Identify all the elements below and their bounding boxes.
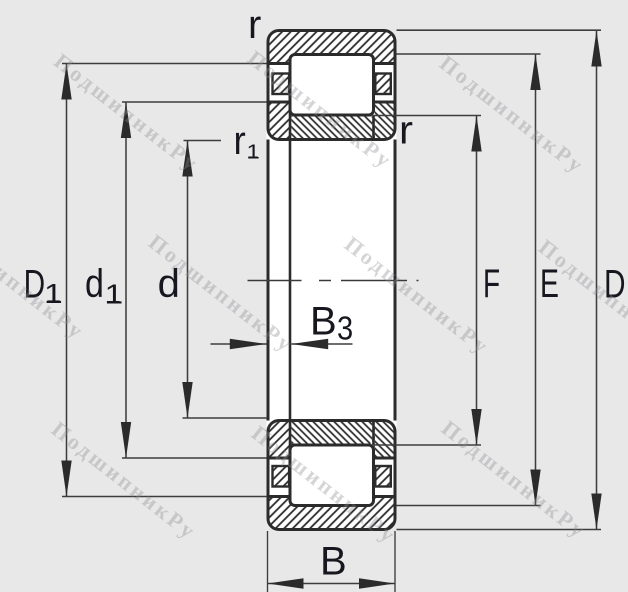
svg-text:r: r [399, 107, 413, 152]
svg-text:3: 3 [337, 310, 353, 347]
svg-text:1: 1 [105, 278, 124, 310]
svg-text:1: 1 [247, 140, 260, 163]
svg-text:F: F [483, 262, 500, 306]
svg-text:B: B [320, 540, 347, 584]
svg-text:d: d [85, 260, 104, 305]
svg-text:r: r [234, 119, 246, 164]
svg-text:B: B [310, 300, 337, 344]
svg-text:r: r [248, 3, 261, 47]
